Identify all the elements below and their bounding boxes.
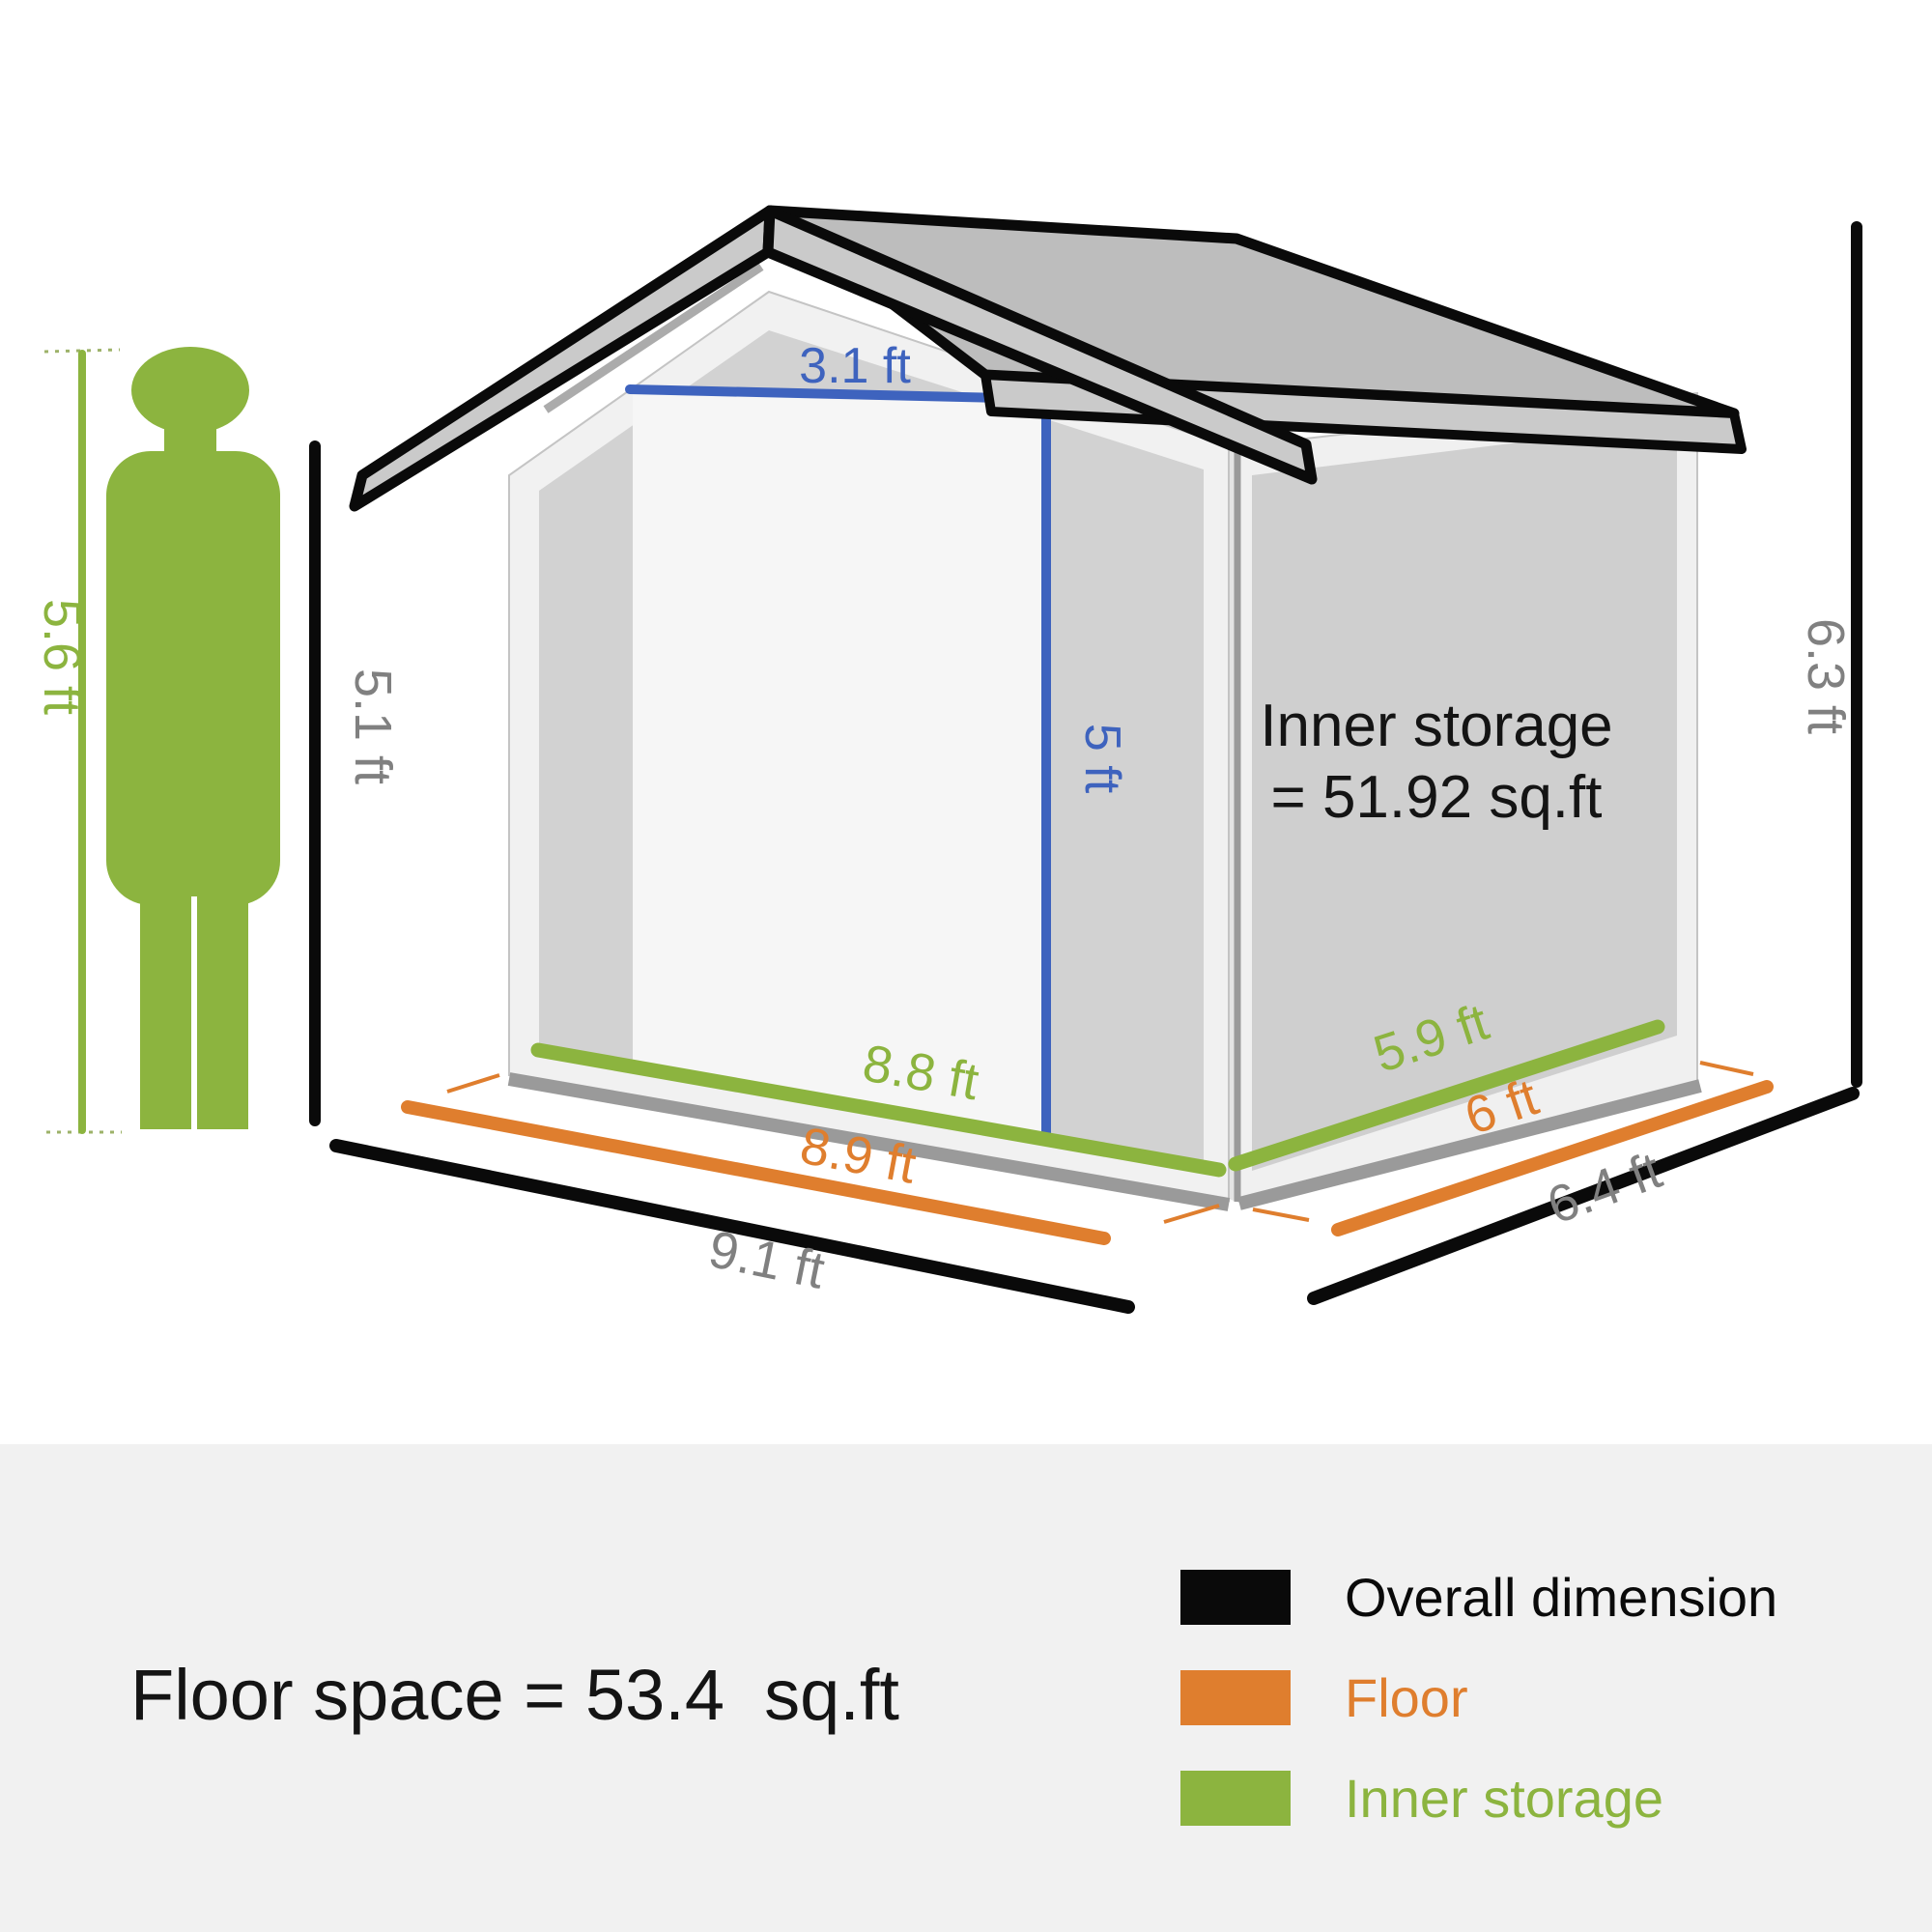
shed-door xyxy=(630,388,1050,1140)
inner-storage-line2: = 51.92 sq.ft xyxy=(1271,764,1603,831)
shed-front-height-measure: 5.1 ft xyxy=(315,446,402,1121)
orange-dash-center-right xyxy=(1253,1209,1309,1220)
legend-row-overall: Overall dimension xyxy=(1180,1570,1777,1625)
inner-storage-line1: Inner storage xyxy=(1260,693,1612,759)
orange-dash-right-corner xyxy=(1700,1063,1753,1074)
legend: Overall dimension Floor Inner storage xyxy=(1180,1570,1777,1871)
door-height-label: 5 ft xyxy=(1074,724,1130,794)
shed-overall-height-measure: 6.3 ft xyxy=(1797,227,1857,1082)
inner-storage-swatch xyxy=(1180,1771,1291,1826)
shed-dimension-diagram: 5.6 ft 5.1 ft 3.1 ft 5 ft Inner stora xyxy=(0,0,1932,1449)
floor-space-text: Floor space = 53.4 sq.ft xyxy=(130,1654,899,1736)
person-height-label: 5.6 ft xyxy=(33,599,91,715)
floor-label: Floor xyxy=(1345,1670,1468,1725)
legend-row-floor: Floor xyxy=(1180,1670,1777,1725)
page: { "figure": { "height_label": "5.6 ft" }… xyxy=(0,0,1932,1932)
orange-dash-left-corner xyxy=(447,1075,499,1092)
overall-dimension-swatch xyxy=(1180,1570,1291,1625)
door-panel xyxy=(633,388,1050,1140)
legend-row-inner-storage: Inner storage xyxy=(1180,1771,1777,1826)
overall-width-label: 9.1 ft xyxy=(704,1220,830,1300)
door-width-label: 3.1 ft xyxy=(799,338,911,394)
floor-swatch xyxy=(1180,1670,1291,1725)
person-head xyxy=(131,347,249,434)
inner-storage-label: Inner storage xyxy=(1345,1771,1663,1826)
orange-dash-center-left xyxy=(1164,1206,1219,1222)
person-torso xyxy=(106,451,280,905)
person-silhouette xyxy=(106,347,280,1129)
overall-dimension-label: Overall dimension xyxy=(1345,1570,1777,1625)
overall-height-label: 6.3 ft xyxy=(1797,618,1855,734)
front-height-label: 5.1 ft xyxy=(344,668,402,784)
